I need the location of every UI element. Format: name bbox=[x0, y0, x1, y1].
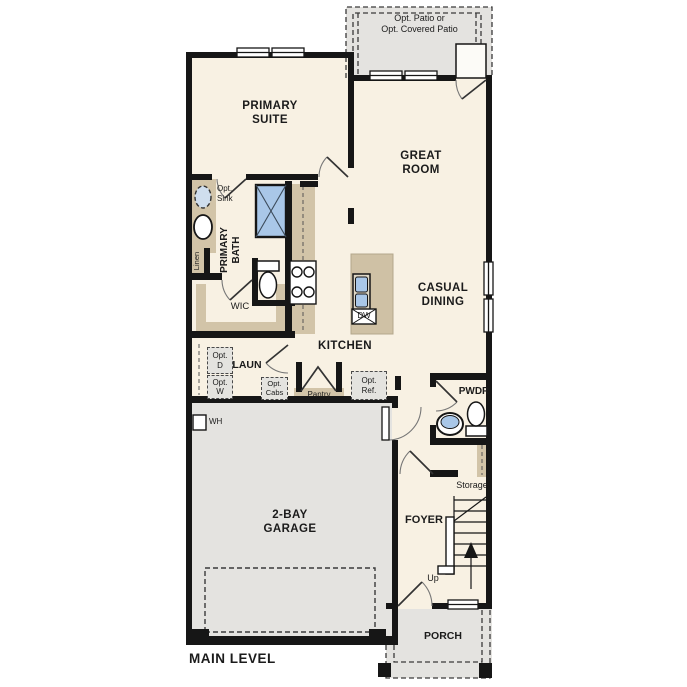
dishwasher-label: DW bbox=[352, 311, 376, 321]
opt-sink-line1: Opt. bbox=[217, 184, 247, 194]
primary-bath-lines: PRIMARY BATH bbox=[219, 227, 244, 273]
opt-washer-line1: Opt. bbox=[212, 378, 227, 387]
foyer-label: FOYER bbox=[394, 514, 454, 528]
pantry-label: Pantry bbox=[294, 390, 344, 400]
suite-window-1 bbox=[237, 48, 269, 57]
patio-label-line1: Opt. Patio or bbox=[347, 13, 492, 24]
opt-sink-label: Opt. Sink bbox=[217, 184, 247, 204]
linen-label: Linen bbox=[177, 241, 217, 281]
wall-foyer-bottom-a bbox=[386, 603, 398, 609]
opt-ref-box: Opt. Ref. bbox=[351, 371, 387, 400]
suite-window-2 bbox=[272, 48, 304, 57]
wall-pantry-jamb-left bbox=[296, 362, 302, 392]
kitchen-label: KITCHEN bbox=[285, 339, 405, 353]
wall-garage-right-b bbox=[392, 440, 398, 645]
island-sink-icon bbox=[353, 274, 370, 310]
wall-suite-right bbox=[348, 52, 354, 168]
wall-garage-right-a bbox=[392, 396, 398, 408]
opt-washer-box: Opt. W bbox=[207, 375, 233, 399]
porch-post-right bbox=[479, 663, 492, 678]
primary-suite-line1: PRIMARY bbox=[210, 99, 330, 113]
opt-dryer-box: Opt. D bbox=[207, 347, 233, 374]
patio-label: Opt. Patio or Opt. Covered Patio bbox=[347, 13, 492, 36]
wall-pwdr-west-a bbox=[430, 373, 436, 387]
wall-pwdr-west-b bbox=[430, 425, 436, 438]
floor-plan: Opt. Patio or Opt. Covered Patio PRIMARY… bbox=[0, 0, 687, 687]
wall-garage-bottom bbox=[186, 636, 392, 645]
wall-left-exterior bbox=[186, 52, 192, 645]
wall-suite-top bbox=[186, 52, 354, 58]
patio-door-stoop bbox=[456, 44, 486, 78]
porch-floor bbox=[386, 609, 492, 678]
wall-pwdr-bottom bbox=[430, 438, 492, 445]
great-room-line2: ROOM bbox=[361, 163, 481, 177]
opt-sink-line2: Sink bbox=[217, 194, 247, 204]
wall-hall-kitchen bbox=[300, 181, 318, 187]
opt-ref-line1: Opt. bbox=[361, 376, 376, 385]
opt-ref-line2: Ref. bbox=[362, 386, 377, 395]
wall-suite-bottom-b bbox=[246, 174, 318, 180]
linen-text: Linen bbox=[192, 252, 201, 270]
primary-suite-line2: SUITE bbox=[210, 113, 330, 127]
wall-pantry-jamb-right bbox=[336, 362, 342, 392]
opt-cabs-box: Opt. Cabs bbox=[261, 377, 288, 400]
casual-dining-line2: DINING bbox=[383, 295, 503, 309]
plan-title: MAIN LEVEL bbox=[189, 651, 276, 668]
garage-door-jamb-left bbox=[192, 629, 209, 642]
garage-door-jamb-right bbox=[369, 629, 386, 642]
garage-line1: 2-BAY bbox=[230, 508, 350, 522]
opt-dryer-line2: D bbox=[217, 361, 223, 370]
foyer-window bbox=[448, 600, 478, 609]
wall-right-exterior bbox=[486, 75, 492, 609]
primary-suite-label: PRIMARY SUITE bbox=[210, 99, 330, 128]
storage-label: Storage bbox=[442, 480, 502, 491]
stove-icon bbox=[290, 261, 316, 304]
primary-bath-line1: PRIMARY bbox=[219, 227, 232, 273]
opt-washer-line2: W bbox=[216, 387, 224, 396]
opt-dryer-line1: Opt. bbox=[212, 351, 227, 360]
wall-stub-greatroom bbox=[348, 208, 354, 224]
casual-dining-label: CASUAL DINING bbox=[383, 281, 503, 310]
water-heater-label: WH bbox=[209, 417, 222, 427]
wall-pwdr-top bbox=[430, 373, 492, 380]
great-room-line1: GREAT bbox=[361, 149, 481, 163]
up-label: Up bbox=[420, 573, 446, 584]
patio-label-line2: Opt. Covered Patio bbox=[347, 24, 492, 35]
primary-bath-line2: BATH bbox=[231, 227, 244, 273]
casual-dining-line1: CASUAL bbox=[383, 281, 503, 295]
wall-foyer-stair-stub bbox=[430, 470, 458, 477]
water-heater-icon bbox=[193, 415, 206, 430]
porch-label: PORCH bbox=[403, 630, 483, 643]
greatroom-window-1 bbox=[370, 71, 402, 80]
wall-hall-stub bbox=[395, 376, 401, 390]
right-wing-floor bbox=[350, 78, 487, 403]
garage-line2: GARAGE bbox=[230, 522, 350, 536]
great-room-label: GREAT ROOM bbox=[361, 149, 481, 178]
pwdr-label: PWDR bbox=[446, 386, 502, 399]
opt-cabs-line2: Cabs bbox=[266, 389, 284, 398]
pwdr-sink-icon bbox=[437, 413, 463, 435]
wic-label: WIC bbox=[210, 301, 270, 313]
porch-post-left bbox=[378, 663, 391, 677]
garage-entry-door-leaf bbox=[382, 407, 389, 440]
wall-suite-bottom-a bbox=[186, 174, 212, 180]
greatroom-window-2 bbox=[405, 71, 437, 80]
optional-sink-icon bbox=[195, 186, 211, 208]
wall-wic-bottom bbox=[186, 331, 295, 338]
garage-label: 2-BAY GARAGE bbox=[230, 508, 350, 537]
